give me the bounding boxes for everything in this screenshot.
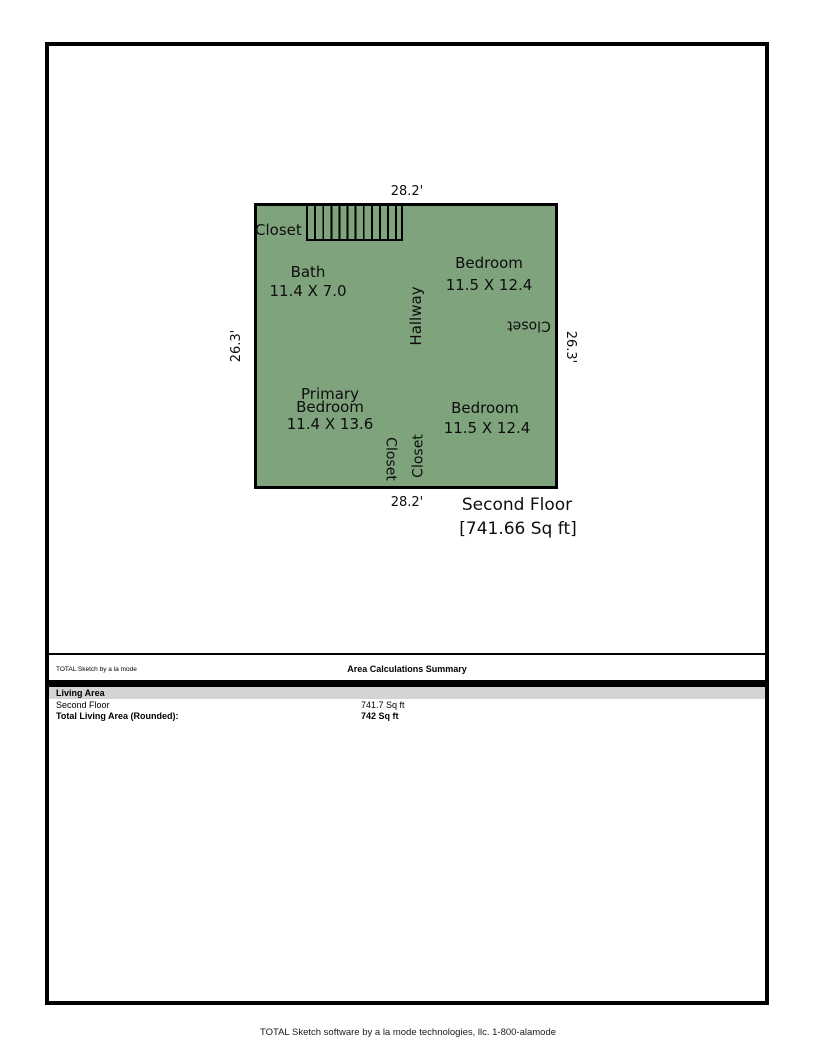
floor-area: [741.66 Sq ft]: [459, 520, 577, 539]
label-bedroom-top-size: 11.5 X 12.4: [446, 277, 533, 294]
label-hallway: Hallway: [408, 286, 425, 345]
floor-title: Second Floor: [462, 496, 572, 515]
label-primary-line2: Bedroom: [296, 399, 364, 416]
dimension-bottom: 28.2': [391, 496, 424, 510]
label-closet-top: Closet: [255, 222, 302, 239]
summary-divider: [45, 680, 769, 687]
row-second-floor-label: Second Floor: [56, 700, 110, 710]
floor-plan: [254, 203, 558, 489]
label-closet-right: Closet: [507, 317, 551, 332]
footer-text: TOTAL Sketch software by a la mode techn…: [0, 1027, 816, 1038]
row-second-floor-value: 741.7 Sq ft: [361, 700, 405, 710]
row-total-value: 742 Sq ft: [361, 711, 399, 721]
label-closet-middle-right: Closet: [411, 434, 426, 478]
label-bedroom-top-name: Bedroom: [455, 255, 523, 272]
label-bath-size: 11.4 X 7.0: [269, 283, 346, 300]
dimension-top: 28.2': [391, 185, 424, 199]
row-total-label: Total Living Area (Rounded):: [56, 711, 179, 721]
label-bedroom-bottom-name: Bedroom: [451, 400, 519, 417]
label-bath-name: Bath: [291, 264, 326, 281]
sketch-page: { "floor_plan": { "fill_color": "#7fa37d…: [0, 0, 816, 1056]
label-bedroom-bottom-size: 11.5 X 12.4: [444, 420, 531, 437]
label-closet-middle-left: Closet: [382, 437, 397, 481]
summary-title: Area Calculations Summary: [45, 664, 769, 674]
label-primary-size: 11.4 X 13.6: [287, 416, 374, 433]
dimension-left: 26.3': [230, 330, 244, 363]
dimension-right: 26.3': [563, 331, 577, 364]
staircase-icon: [306, 206, 403, 241]
living-area-header: Living Area: [49, 687, 765, 699]
summary-top-rule: [49, 653, 765, 655]
